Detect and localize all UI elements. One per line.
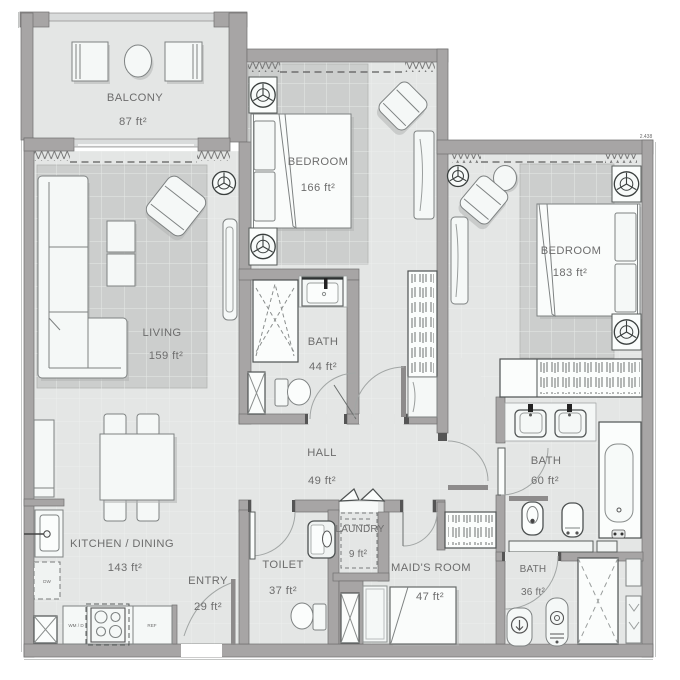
svg-text:37 ft²: 37 ft² <box>269 585 297 597</box>
svg-text:BALCONY: BALCONY <box>107 92 163 104</box>
svg-text:29 ft²: 29 ft² <box>194 601 222 613</box>
svg-text:44 ft²: 44 ft² <box>309 361 337 373</box>
svg-text:166 ft²: 166 ft² <box>301 182 336 194</box>
svg-text:MAID'S ROOM: MAID'S ROOM <box>391 562 471 574</box>
svg-text:DW: DW <box>43 579 51 584</box>
svg-text:BATH: BATH <box>520 564 547 575</box>
svg-text:TOILET: TOILET <box>262 559 303 571</box>
svg-text:87 ft²: 87 ft² <box>119 116 147 128</box>
svg-text:LIVING: LIVING <box>142 327 181 339</box>
svg-text:KITCHEN / DINING: KITCHEN / DINING <box>70 538 174 550</box>
svg-text:BATH: BATH <box>308 336 339 348</box>
svg-text:BEDROOM: BEDROOM <box>541 245 602 257</box>
svg-text:2.438: 2.438 <box>640 134 653 140</box>
svg-text:LAUNDRY: LAUNDRY <box>335 524 384 535</box>
svg-text:47 ft²: 47 ft² <box>416 591 444 603</box>
svg-text:159 ft²: 159 ft² <box>149 350 184 362</box>
svg-text:36 ft²: 36 ft² <box>521 587 545 598</box>
svg-text:BATH: BATH <box>531 455 562 467</box>
svg-text:49 ft²: 49 ft² <box>308 475 336 487</box>
svg-text:ENTRY: ENTRY <box>188 575 228 587</box>
svg-text:BEDROOM: BEDROOM <box>288 156 349 168</box>
svg-text:REF: REF <box>147 623 156 628</box>
svg-text:HALL: HALL <box>307 447 337 459</box>
svg-text:143 ft²: 143 ft² <box>108 562 143 574</box>
svg-text:60 ft²: 60 ft² <box>531 475 559 487</box>
svg-text:9 ft²: 9 ft² <box>349 549 368 560</box>
svg-text:WM / D: WM / D <box>68 623 84 628</box>
svg-text:183 ft²: 183 ft² <box>553 267 588 279</box>
